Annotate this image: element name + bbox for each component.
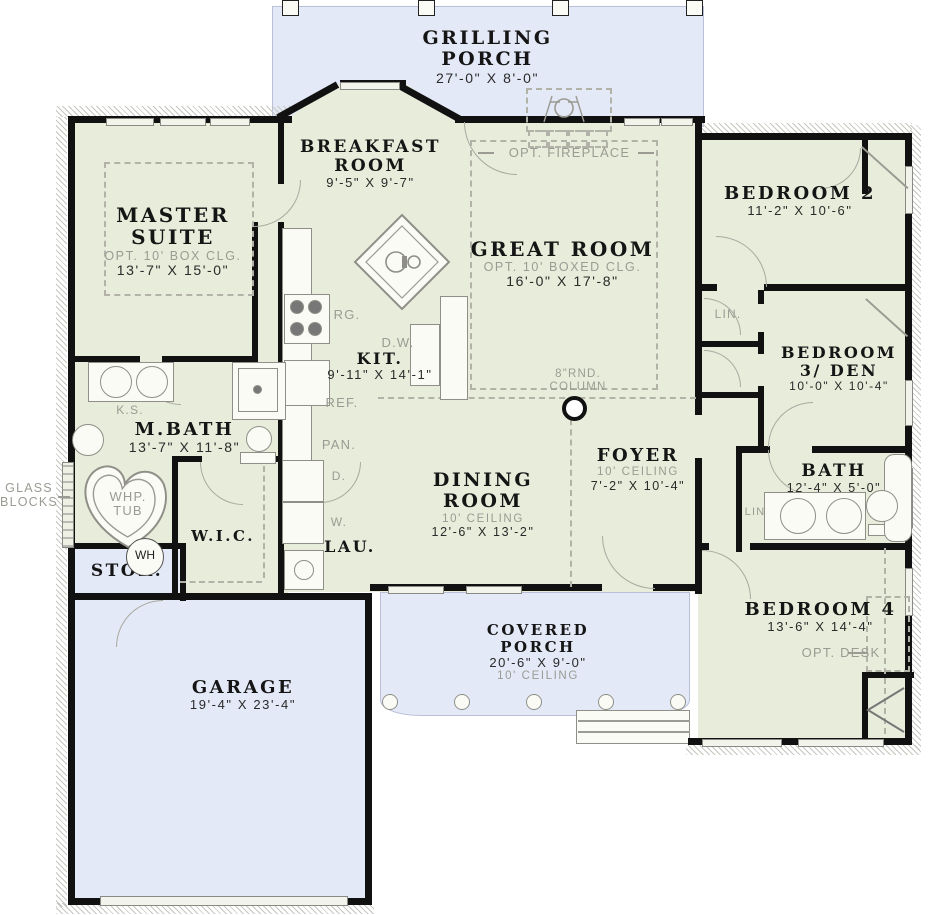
room-name: M.BATH [92,420,277,440]
room-ceiling: 10' CEILING [448,670,628,683]
kitchen-label: KIT. 9'-11" X 14'-1" [300,350,460,382]
room-dims: 13'-7" X 15'-0" [88,263,258,279]
wall [700,341,764,347]
laundry-label: LAU. [308,538,392,556]
floor-plan: GRILLING PORCH 27'-0" X 8'-0" OPT. FIREP… [0,0,950,915]
covered-porch-label: COVERED PORCH 20'-6" X 9'-0" 10' CEILING [448,622,628,683]
room-ceiling: 10' CEILING [568,466,708,479]
dishwasher-label: D.W. [378,336,418,350]
fixture-circle [136,366,168,398]
room-name: BEDROOM 3/ DEN [770,344,908,380]
wall [68,600,75,905]
wall [758,290,764,304]
leader-line [578,731,690,733]
wall [278,116,284,184]
round-column-label: 8"RND. COLUMN [540,368,616,393]
window [340,82,400,90]
room-name: COVERED PORCH [448,622,628,656]
room-dims: 11'-2" X 10'-6" [700,204,900,219]
fixture-circle [598,694,614,710]
water-heater-label: WH [127,549,163,562]
wall [365,598,372,905]
porch-post [552,0,569,16]
fixture [282,460,324,502]
wall [862,672,914,678]
room-name: GARAGE [148,678,338,698]
room-name: KIT. [300,350,460,368]
room-dims: 16'-0" X 17'-8" [460,274,665,290]
window [388,586,444,594]
wall [172,456,202,462]
window [905,166,913,214]
fixture-circle [294,560,314,580]
room-name: DINING ROOM [398,470,568,513]
room-opt-ceiling: OPT. 10' BOXED CLG. [460,260,665,274]
porch-post [282,0,299,16]
opt-fireplace-label: OPT. FIREPLACE [497,146,642,160]
bedroom3-label: BEDROOM 3/ DEN 10'-0" X 10'-4" [770,344,908,393]
shower-drain [253,385,262,394]
dryer-label: D. [328,470,350,483]
glass-block-window [62,462,74,548]
kitchen-island-icon [352,212,452,312]
fixture-circle [780,498,816,534]
window [661,118,693,126]
grilling-porch-label: GRILLING PORCH 27'-0" X 8'-0" [395,28,580,86]
master-bath-label: M.BATH 13'-7" X 11'-8" [92,420,277,456]
wall [68,593,372,600]
room-name: BREAKFAST ROOM [288,138,453,176]
glass-blocks-label: GLASS BLOCKS [0,482,58,510]
round-column [562,396,587,421]
dashed-line [378,397,696,399]
room-name: GREAT ROOM [460,238,665,260]
bath-label: BATH 12'-4" X 5'-0" [764,462,904,495]
room-dims: 9'-5" X 9'-7" [288,176,453,191]
room-ceiling: 10' CEILING [398,513,568,526]
window [100,896,348,906]
window [160,118,206,126]
wall [764,284,912,291]
wall [695,543,709,550]
wall [750,543,912,550]
room-name: BATH [764,462,904,481]
room-name: MASTER SUITE [88,204,258,249]
foyer-label: FOYER 10' CEILING 7'-2" X 10'-4" [568,446,708,493]
grill-icon [538,92,590,124]
dashed-line [180,581,262,583]
whp-tub-label: WHP. TUB [94,490,162,519]
fixture [282,228,312,462]
dining-room-label: DINING ROOM 10' CEILING 12'-6" X 13'-2" [398,470,568,539]
fixture-circle [308,300,322,314]
porch-steps [576,710,690,744]
wall [695,284,717,291]
fixture-circle [670,694,686,710]
wall [653,584,702,591]
range-label: RG. [330,308,364,322]
fixture-circle [826,498,862,534]
room-dims: 27'-0" X 8'-0" [395,71,580,87]
pantry-label: PAN. [316,438,362,452]
fixture-circle [100,366,132,398]
wall [812,446,912,453]
fixture-circle [382,694,398,710]
room-dims: 19'-4" X 23'-4" [148,698,338,713]
bedroom2-label: BEDROOM 2 11'-2" X 10'-6" [700,184,900,219]
room-dims: 13'-6" X 14'-4" [718,620,923,635]
room-dims: 12'-6" X 13'-2" [398,525,568,539]
leader-line [58,496,70,498]
window [702,739,782,747]
window [798,739,884,747]
room-name: GRILLING PORCH [395,28,580,71]
room-name: BEDROOM 4 [718,600,923,620]
wall [736,446,742,552]
room-dims: 9'-11" X 14'-1" [300,368,460,383]
wall [695,133,912,140]
room-dims: 13'-7" X 11'-8" [92,440,277,456]
fixture-circle [290,300,304,314]
wall [695,116,702,415]
window [210,118,250,126]
linen-bath-label: LIN [740,506,770,518]
master-suite-label: MASTER SUITE OPT. 10' BOX CLG. 13'-7" X … [88,204,258,278]
room-dims: 10'-0" X 10'-4" [770,380,908,393]
room-name: LAU. [308,538,392,556]
leader-line [578,720,690,722]
linen-hall-label: LIN. [708,308,748,321]
wall [758,398,764,452]
room-dims: 7'-2" X 10'-4" [568,479,708,493]
great-room-label: GREAT ROOM OPT. 10' BOXED CLG. 16'-0" X … [460,238,665,290]
bifold-closet-door-icon [864,686,906,734]
window [466,586,522,594]
room-name: W.I.C. [178,528,268,545]
room-name: FOYER [568,446,708,466]
porch-post [686,0,703,16]
window [106,118,154,126]
wall [700,392,764,398]
fixture-circle [308,322,322,336]
opt-desk-label: OPT. DESK [795,646,887,660]
garage-label: GARAGE 19'-4" X 23'-4" [148,678,338,713]
room-dims: 12'-4" X 5'-0" [764,481,904,495]
room-dims: 20'-6" X 9'-0" [448,656,628,671]
fixture-circle [290,322,304,336]
bedroom4-label: BEDROOM 4 13'-6" X 14'-4" [718,600,923,635]
refrigerator-label: REF. [320,396,364,410]
dashed-line [263,466,265,578]
window [624,118,660,126]
siding-hatch [700,123,912,133]
fixture-circle [454,694,470,710]
room-opt-ceiling: OPT. 10' BOX CLG. [88,249,258,263]
breakfast-room-label: BREAKFAST ROOM 9'-5" X 9'-7" [288,138,453,191]
fixture-circle [526,694,542,710]
porch-post [418,0,435,16]
wic-label: W.I.C. [178,528,268,545]
wall [560,584,602,591]
washer-label: W. [328,516,350,529]
leader-line [478,152,494,154]
room-name: BEDROOM 2 [700,184,900,204]
knee-space-label: K.S. [108,404,152,417]
